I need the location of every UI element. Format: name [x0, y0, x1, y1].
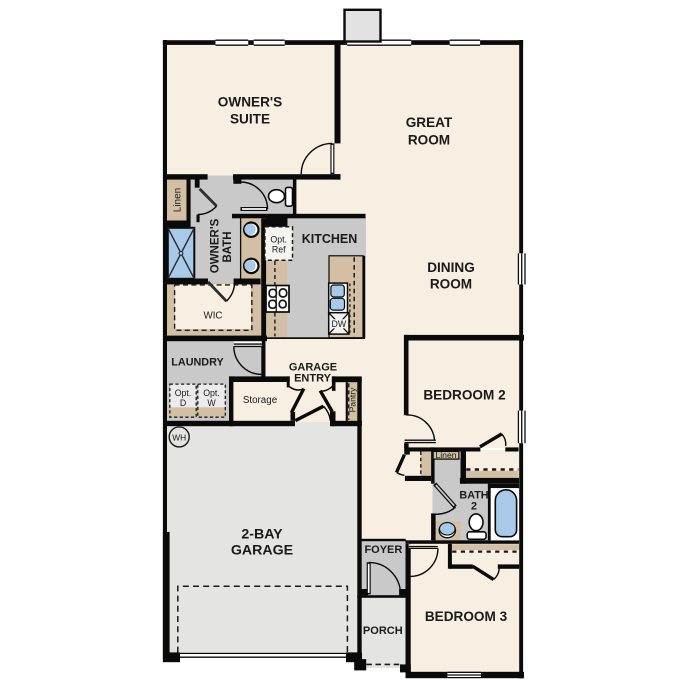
svg-text:GREAT: GREAT: [406, 115, 453, 130]
svg-text:ENTRY: ENTRY: [294, 373, 332, 385]
svg-text:OWNER'S: OWNER'S: [210, 218, 222, 273]
svg-text:Opt.: Opt.: [175, 388, 192, 398]
svg-text:Linen: Linen: [435, 450, 456, 460]
svg-text:2: 2: [471, 501, 477, 513]
svg-text:LAUNDRY: LAUNDRY: [171, 357, 224, 369]
svg-text:KITCHEN: KITCHEN: [302, 232, 358, 246]
svg-text:OWNER'S: OWNER'S: [218, 95, 282, 110]
svg-text:Storage: Storage: [243, 395, 278, 406]
svg-text:Pantry: Pantry: [348, 387, 358, 413]
svg-text:DINING: DINING: [427, 260, 475, 275]
svg-text:ROOM: ROOM: [430, 277, 472, 292]
svg-text:D: D: [180, 398, 186, 408]
svg-text:Opt.: Opt.: [203, 388, 220, 398]
svg-text:BEDROOM 3: BEDROOM 3: [425, 609, 508, 624]
svg-text:BATH: BATH: [222, 231, 234, 262]
svg-text:FOYER: FOYER: [364, 544, 402, 556]
svg-text:PORCH: PORCH: [363, 625, 403, 637]
svg-text:DW: DW: [331, 319, 346, 329]
svg-text:Linen: Linen: [172, 188, 183, 212]
svg-text:ROOM: ROOM: [408, 133, 450, 148]
svg-text:Ref: Ref: [272, 245, 286, 255]
svg-text:2-BAY: 2-BAY: [241, 527, 283, 543]
svg-text:WIC: WIC: [203, 311, 222, 322]
svg-text:BEDROOM 2: BEDROOM 2: [423, 388, 506, 403]
svg-text:W: W: [207, 398, 216, 408]
svg-text:BATH: BATH: [459, 490, 488, 502]
svg-text:Opt.: Opt.: [270, 235, 287, 245]
svg-text:GARAGE: GARAGE: [231, 543, 293, 559]
svg-text:WH: WH: [172, 432, 186, 442]
svg-text:SUITE: SUITE: [230, 112, 270, 127]
